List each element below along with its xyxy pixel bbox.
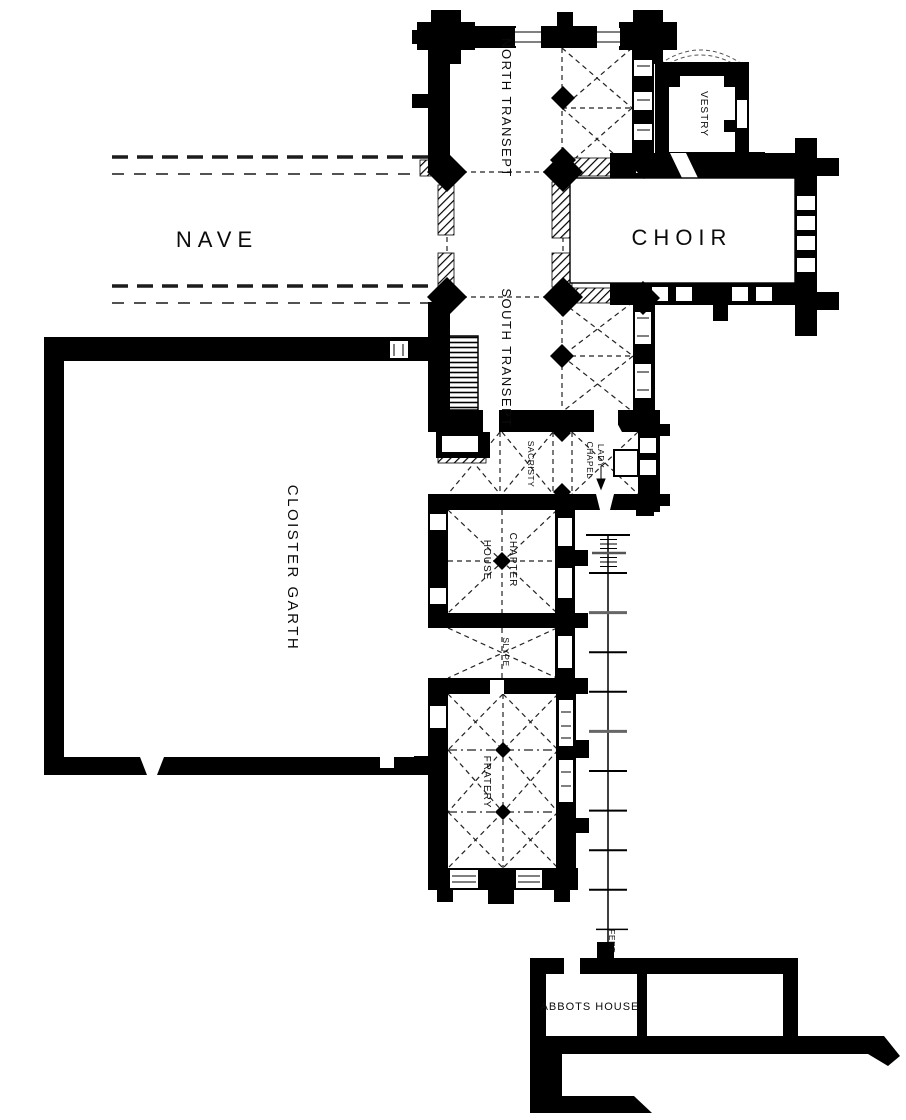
label-nave: NAVE — [176, 227, 258, 252]
label-slype: SLYPE — [501, 637, 511, 666]
abbey-floor-plan-page: NAVE CHOIR NORTH TRANSEPT VESTRY SOUTH T… — [0, 0, 906, 1120]
label-north-transept: NORTH TRANSEPT — [499, 38, 514, 178]
label-sacristy: SACRISTY — [526, 441, 536, 488]
label-fratery: FRATERY — [481, 756, 492, 809]
label-choir: CHOIR — [632, 225, 733, 250]
label-chapter: CHAPTER — [507, 533, 518, 588]
label-lady: LADY — [596, 444, 606, 468]
label-scale-feet: FEET — [607, 929, 617, 953]
label-vestry: VESTRY — [698, 91, 709, 137]
floor-plan-svg: NAVE CHOIR NORTH TRANSEPT VESTRY SOUTH T… — [0, 0, 906, 1120]
label-cloister-garth: CLOISTER GARTH — [284, 485, 301, 651]
day-stairs — [448, 336, 478, 410]
label-house: HOUSE — [481, 540, 492, 581]
lady-chapel-altar — [614, 450, 638, 476]
label-chapel: CHAPEL — [585, 441, 595, 478]
label-abbots-house: ABBOTS HOUSE — [541, 1001, 640, 1013]
label-south-transept: SOUTH TRANSEPT — [499, 288, 514, 427]
